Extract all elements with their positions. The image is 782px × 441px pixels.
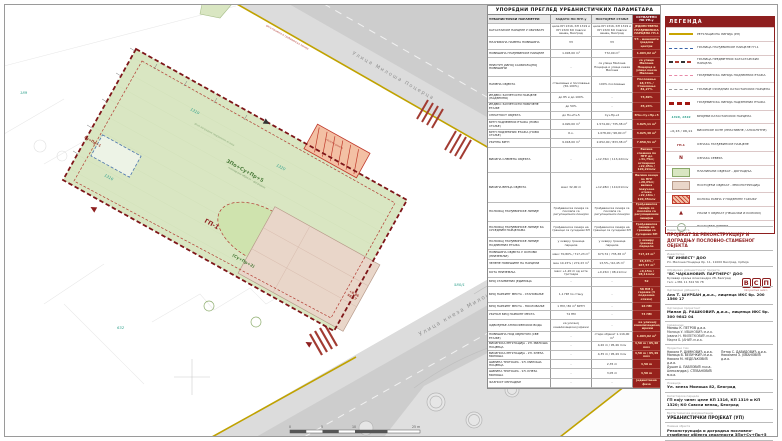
parameter-value: у оквиру граница парцеле <box>592 238 633 251</box>
table-row: ПОВРШИНА ПОД ОБЈЕКТОМ (СВЕ ЕТАЖЕ)-стари … <box>488 332 661 341</box>
parameter-value: 4,20 m / 95,46 mnv <box>592 342 633 351</box>
parameter-value: у оквиру граница парцеле <box>551 238 592 251</box>
legend-item-label: ГРАНИЦА ПРЕДМЕТНИХ КАТАСТАРСКИХ ПАРЦЕЛА <box>697 58 772 65</box>
parameter-value: ЈЕДИНСТВЕНА ГРАЂЕВИНСКА ПАРЦЕЛА ГП-1 <box>633 24 661 37</box>
table-row: ПОВРШИНА ГРАЂЕВИНСКЕ ПАРЦЕЛЕ1.093,00 m²7… <box>488 50 661 59</box>
parameter-name: БРОЈ СТАМБЕНИХ ЈЕДИНИЦА <box>488 278 551 287</box>
legend-item-label: ОЗНАКА ГРАЂЕВИНСКЕ ПАРЦЕЛЕ <box>697 143 749 146</box>
legend-item: ГРАНИЦА ПРЕДМЕТНИХ КАТАСТАРСКИХ ПАРЦЕЛА <box>666 55 774 69</box>
parameter-value: - <box>551 360 592 369</box>
parameter-value: ка уличној канализационој мрежи <box>633 320 663 333</box>
svg-text:580/1: 580/1 <box>454 282 465 287</box>
parameter-value: +12,28m / 110,01mnv <box>592 173 633 202</box>
parameter-value: - <box>592 93 633 102</box>
parameter-name: ПЛАНИРАНА НАМЕНА ПОВРШИНА <box>488 37 551 50</box>
parameter-value: до 50% <box>551 103 592 112</box>
text-teal-icon: 1316, 1319 <box>668 115 694 119</box>
parameter-name: ПОЛОЖАЈ ГРАЂЕВИНСКЕ ЛИНИЈЕ КА СУСЕДНИМ П… <box>488 222 551 238</box>
parameter-value: у оквиру граница парцеле <box>633 238 661 251</box>
parameter-value: до По+П+5 <box>551 112 592 121</box>
section-value: Марта Б. ЈАНИЋ м.и.а. <box>667 339 771 343</box>
line-blackred-icon <box>668 61 694 63</box>
legend-item: ГРАЂЕВИНСКА ЛИНИЈА НАДЗЕМНИХ ЕТАЖА <box>666 96 774 110</box>
parameter-value: 4.825,11 m² <box>633 120 661 129</box>
section-value: ГП коју чине: целе КП 1316, КП 1319 и КП… <box>667 398 771 407</box>
section-value: Милан Д. РАШКОВИЋ д.и.а., лиценца ИКС бр… <box>667 310 771 319</box>
table-row: ШИРИНА ТРОТОАРА - УЛ. КНЕЗА МИЛОША-3,05 … <box>488 369 661 378</box>
legend-item-label: ПЛАНИРАНИ ОБЈЕКАТ - ДОГРАДЊА <box>697 170 752 173</box>
titleblock-section: СараднициМилош К. ПЕТРОВ д.и.а.Милица У.… <box>665 321 773 344</box>
legend-item-label: БРОЈЕВИ КАТАСТАРСКИХ ПАРЦЕЛА <box>697 115 751 118</box>
parcel-trees <box>204 301 261 327</box>
parameter-name: БРГП ПОДЗЕМНИХ ЕТАЖА (НОВО СТАЊЕ) <box>488 130 551 139</box>
legend-item-label: ПОСТОЈЕЋИ ОБЈЕКАТ - РЕКОНСТРУКЦИЈА <box>697 184 760 187</box>
table-row: ПЛАНИРАНА НАМЕНА ПОВРШИНАУЗУЗУЗ - мешови… <box>488 37 661 50</box>
parameter-name: УКУПНА БРГП <box>488 139 551 148</box>
table-row: ПРИСТУП ЈАВНОЈ САОБРАЋАЈНОЈ ПОВРШИНИ-са … <box>488 58 661 77</box>
parameter-value: мин 10-15% / 272,23 m² <box>551 260 592 269</box>
titleblock-section: Одговорни урбанистаАна Т. ШУРБАН д.и.а.,… <box>665 286 773 303</box>
parameters-table-body: КАТАСТАРСКЕ ПАРЦЕЛЕ У ОБУХВАТУцеле КП 13… <box>488 24 661 387</box>
svg-text:5: 5 <box>321 425 323 429</box>
titleblock-section: Врста техничке документацијеУРБАНИСТИЧКИ… <box>665 409 773 422</box>
parameter-value: целе КП 1316, КП 1319 и КП 1320 КО Савск… <box>592 24 633 37</box>
parameter-value: 73,89% <box>633 93 661 102</box>
svg-text:189: 189 <box>20 90 28 95</box>
parameter-name: УКУПАН БРОЈ ПАРКИНГ МЕСТА <box>488 311 551 320</box>
parameter-name: ШИРИНА ТРОТОАРА - УЛ. МИЛОША ПОЦЕРЦА <box>488 360 551 369</box>
parameter-value: 1 ПМ / 80 m² БРГП <box>551 303 592 312</box>
legend-item: 1316, 1319БРОЈЕВИ КАТАСТАРСКИХ ПАРЦЕЛА <box>666 110 774 124</box>
parameter-value: 772,00 m² <box>592 50 633 59</box>
parameter-value: 1.078,00 / 98,00 m² <box>592 130 633 139</box>
parameter-value: јединствена фаза <box>633 379 661 388</box>
swatch-green-icon <box>668 168 694 177</box>
parameter-value: 4,35 m / 95,49 mnv <box>592 351 633 360</box>
line-yellow-icon <box>668 33 694 35</box>
parameter-value: УЗ <box>592 37 633 50</box>
parameter-name: КОТА ПРИЗЕМЉА <box>488 269 551 278</box>
table-row: УКУПАН БРОЈ ПАРКИНГ МЕСТА74 ПМ-74 ПМ <box>488 311 661 320</box>
parameter-value: макс 70,80% / 717,23 m² <box>551 250 592 259</box>
parameter-value: до 85 и до 100% <box>551 93 592 102</box>
parameter-value: - <box>551 369 592 378</box>
parameter-value: Грађевинска линија на граници са суседни… <box>592 222 633 238</box>
table-row: БРГП ПОДЗЕМНИХ ЕТАЖА (НОВО СТАЊЕ)б.о.1.0… <box>488 130 661 139</box>
parameter-value: +0,15m / 98,11mnv <box>592 269 633 278</box>
parameter-value: - <box>551 278 592 287</box>
table-row: БРОЈ СТАМБЕНИХ ЈЕДИНИЦА--52 <box>488 278 661 287</box>
parameter-value: УЗ - мешовити градски центри <box>633 37 661 50</box>
parameter-name: ПРИСТУП ЈАВНОЈ САОБРАЋАЈНОЈ ПОВРШИНИ <box>488 58 551 77</box>
parameter-value: - <box>551 332 592 341</box>
table-row: ИНДЕКС ЗАУЗЕТОСТИ ПАРЦЕЛЕ (НАДЗЕМНО)до 8… <box>488 93 661 102</box>
parameter-value: 1.093,02 m² <box>633 50 661 59</box>
parameter-name: ВИСИНА СЛЕМЕНА ОБЈЕКТА <box>488 148 551 174</box>
parameter-value: 1.093,00 m² <box>551 50 592 59</box>
legend-item-label: КОЛСКА РАМПА У ПОДЗЕМНУ ГАРАЖУ <box>697 198 757 201</box>
titleblock-section: Намена објектаРеконструкција и доградња … <box>665 422 773 439</box>
parameter-name: ШИРИНА ТРОТОАРА - УЛ. КНЕЗА МИЛОША <box>488 369 551 378</box>
parameter-value: 58 ПМ у гаражи (3 подземне етаже) <box>633 287 661 303</box>
parameter-value: 1.574,00 / 735,38 m² <box>592 120 633 129</box>
parameters-table: УПОРЕДНИ ПРЕГЛЕД УРБАНИСТИЧКИХ ПАРАМЕТАР… <box>487 5 662 389</box>
legend-item-label: ОЗНАКА СЕВЕРА <box>697 157 723 160</box>
column-header: ЗАДАТО ПО ПГР-у <box>551 15 592 24</box>
legend-item: NОЗНАКА СЕВЕРА <box>666 151 774 165</box>
table-row: ПОЛОЖАЈ ГРАЂЕВИНСКЕ ЛИНИЈЕ ПОДЗЕМНИХ ЕТА… <box>488 238 661 251</box>
parameter-value: Грађевинска линија се поклапа са регулац… <box>592 203 633 222</box>
right-panel: ЛЕГЕНДА РЕГУЛАЦИОНА ЛИНИЈА (РЛ)ГРАНИЦА Г… <box>660 4 779 437</box>
legend-item-label: ГРАЂЕВИНСКА ЛИНИЈА ПОДЗЕМНИХ ЕТАЖА <box>697 74 766 77</box>
table-row: ВИСИНА СЛЕМЕНА ОБЈЕКТА-+12,76m / 113,22m… <box>488 148 661 174</box>
parameter-value: 16 ПМ <box>633 303 661 312</box>
parameter-value: - <box>551 379 592 388</box>
parameter-value: Грађевинска линија се поклапа са регулац… <box>551 203 592 222</box>
svg-text:10: 10 <box>352 425 356 429</box>
parameter-value: +12,76m / 113,22mnv <box>592 148 633 174</box>
legend-item: РЕГУЛАЦИОНА ЛИНИЈА (РЛ) <box>666 27 774 41</box>
table-row: ФАЗНОСТ ИЗГРАДЊЕ--јединствена фаза <box>488 379 661 388</box>
parameter-value: - <box>592 303 633 312</box>
parameter-value: - <box>551 342 592 351</box>
titleblock-section: Обрађивач урбанистичког пројекта"ВС ЧАЈК… <box>665 266 773 286</box>
titleblock-sections: Назив пројектаПРОЈЕКАТ ЗА РЕКОНСТРУКЦИЈУ… <box>665 226 773 441</box>
table-row: ВИСИНСКА РЕГУЛАЦИЈА - УЛ. КНЕЗА МИЛОША-4… <box>488 351 661 360</box>
table-row: ОДВОЂЕЊЕ АТМОСФЕРСКИХ ВОДАка уличној кан… <box>488 320 661 333</box>
table-row: БРГП НАДЗЕМНИХ ЕТАЖА (НОВО СТАЊЕ)4.920,0… <box>488 120 661 129</box>
parameter-value: - <box>592 311 633 320</box>
drawing-sheet: Улица Милоша Поцерца Улица кнеза Милоша … <box>0 0 782 441</box>
parameter-name: КАТАСТАРСКЕ ПАРЦЕЛЕ У ОБУХВАТУ <box>488 24 551 37</box>
svg-text:25 m: 25 m <box>412 425 420 429</box>
table-row: ВИСИНА ВЕНЦА ОБЈЕКТАмакс 32,00 m+12,28m … <box>488 173 661 202</box>
table-row: СПРАТНОСТ ОБЈЕКТАдо По+П+5Су+Пр+23По+Су+… <box>488 112 661 121</box>
parameter-value: Висина слемена по ПГР до +31,75m; оствар… <box>633 148 661 174</box>
legend-item: ПОСТОЈЕЋИ ОБЈЕКАТ - РЕКОНСТРУКЦИЈА <box>666 178 774 192</box>
column-header: УРБАНИСТИЧКИ ПАРАМЕТРИ <box>488 15 551 24</box>
titleblock-section: Катастарске парцелеГП коју чине: целе КП… <box>665 392 773 409</box>
parameter-value: 100% пословање <box>592 77 633 93</box>
section-value: Реконструкција и доградња пословно-стамб… <box>667 429 771 438</box>
parameter-name: ПОВРШИНА ПОД ОБЈЕКТОМ (СВЕ ЕТАЖЕ) <box>488 332 551 341</box>
team-member: Александра Ј. СТЕВАНОВИЋ м.и.а. <box>667 370 717 378</box>
parameter-value: 3По+Су+Пр+5 <box>633 112 661 121</box>
swatch-hatch-icon <box>668 195 694 204</box>
parameters-table-title: УПОРЕДНИ ПРЕГЛЕД УРБАНИСТИЧКИХ ПАРАМЕТАР… <box>488 6 661 15</box>
table-row: КАТАСТАРСКЕ ПАРЦЕЛЕ У ОБУХВАТУцеле КП 13… <box>488 24 661 37</box>
parameter-name: ВИСИНА ВЕНЦА ОБЈЕКТА <box>488 173 551 202</box>
parameter-value: стари објекат 1.116,00 m² <box>592 332 633 341</box>
legend-item-label: ГРАНИЦА ГРАЂЕВИНСКЕ ПАРЦЕЛЕ ГП-1 <box>697 46 759 49</box>
titleblock-section: Инвеститор"ВГ ИНВЕСТ" ДООУл. Милоша Поце… <box>665 250 773 266</box>
parameters-table-header: УРБАНИСТИЧКИ ПАРАМЕТРИ ЗАДАТО ПО ПГР-у П… <box>488 15 661 24</box>
parameter-value: ка уличној канализационој мрежи <box>551 320 592 333</box>
line-blue-dash-icon <box>668 48 694 49</box>
text-red-icon: ГП-1 <box>668 143 694 147</box>
parameter-name: БРГП НАДЗЕМНИХ ЕТАЖА (НОВО СТАЊЕ) <box>488 120 551 129</box>
section-value: Ана Т. ШУРБАН д.и.а., лиценца ИКС бр. 20… <box>667 293 771 302</box>
parameter-value: - <box>592 278 633 287</box>
svg-text:632: 632 <box>117 325 125 330</box>
section-value: УРБАНИСТИЧКИ ПРОЈЕКАТ (УП) <box>667 415 771 420</box>
parameter-value: 45,24% <box>633 103 661 112</box>
parameter-value: 717,23 m² <box>633 250 661 259</box>
parameter-value: 4.920,00 m² <box>551 120 592 129</box>
legend-title: ЛЕГЕНДА <box>666 17 774 27</box>
triangle-red-icon: ▲ <box>668 210 694 216</box>
table-row: ПОЛОЖАЈ ГРАЂЕВИНСКЕ ЛИНИЈЕГрађевинска ли… <box>488 203 661 222</box>
legend-item-label: УЛАЗИ У ОБЈЕКАТ (ПЕШАЧКИ И КОЛСКИ) <box>697 212 761 215</box>
titleblock-section: Одговорни пројектантМилан Д. РАШКОВИЋ д.… <box>665 304 773 321</box>
parameter-name: ФАЗНОСТ ИЗГРАДЊЕ <box>488 379 551 388</box>
legend-item: КОЛСКА РАМПА У ПОДЗЕМНУ ГАРАЖУ <box>666 192 774 206</box>
parameter-name: СПРАТНОСТ ОБЈЕКТА <box>488 112 551 121</box>
parameter-name: ПОВРШИНА ГРАЂЕВИНСКЕ ПАРЦЕЛЕ <box>488 50 551 59</box>
parameter-value: - <box>551 148 592 174</box>
parameter-value: Висина венца по ПГР +28,65m; висина пову… <box>633 173 661 202</box>
table-row: БРОЈ ПАРКИНГ МЕСТА - ПОСЛОВАЊЕ1 ПМ / 80 … <box>488 303 661 312</box>
swatch-beige-icon <box>668 181 694 190</box>
table-row: ПОЛОЖАЈ ГРАЂЕВИНСКЕ ЛИНИЈЕ КА СУСЕДНИМ П… <box>488 222 661 238</box>
parameter-value: 673,74 / 735,38 m² <box>592 250 633 259</box>
parameter-value: 4,50 m / 95,46 mnv <box>633 342 661 351</box>
table-row: БРОЈ ПАРКИНГ МЕСТА - СТАНОВАЊЕ1,1 ПМ по … <box>488 287 661 303</box>
parameter-value: 1,1 ПМ по стану <box>551 287 592 303</box>
section-label: Назив пројекта <box>667 228 771 232</box>
parameter-value: +0,15m / 98,11mnv <box>633 269 661 278</box>
titleblock-section: Назив пројектаПРОЈЕКАТ ЗА РЕКОНСТРУКЦИЈУ… <box>665 226 773 250</box>
parameter-value: 4,50 m / 95,49 mnv <box>633 351 661 360</box>
legend-item: ГРАНИЦА ГРАЂЕВИНСКЕ ПАРЦЕЛЕ ГП-1 <box>666 41 774 55</box>
parameter-name: БРОЈ ПАРКИНГ МЕСТА - СТАНОВАЊЕ <box>488 287 551 303</box>
parameter-value: 3.025,40 m² <box>633 130 661 139</box>
entrance-arrow-icon <box>304 339 312 347</box>
parameter-value: - <box>592 287 633 303</box>
line-pink-dash-icon <box>668 75 694 76</box>
parameter-name: ИНДЕКС ЗАУЗЕТОСТИ ПОВУЧЕНЕ ЕТАЖЕ <box>488 103 551 112</box>
section-value: Ул. кнеза Милоша 82, Београд <box>667 385 771 390</box>
north-icon: N <box>668 156 694 161</box>
parameter-value: Грађевинска линија на граници са суседни… <box>551 222 592 238</box>
parameter-value: са улице Милоша Поцерца и улице кнеза Ми… <box>633 58 661 77</box>
parameter-value: б.о. <box>551 130 592 139</box>
parameter-name: ИНДЕКС ЗАУЗЕТОСТИ ПАРЦЕЛЕ (НАДЗЕМНО) <box>488 93 551 102</box>
parameter-value: Пословање 18,73% / Становање 81,27% <box>633 77 661 93</box>
table-row: ЗЕЛЕНЕ ПОВРШИНЕ НА ПАРЦЕЛИмин 10-15% / 2… <box>488 260 661 269</box>
parameter-value: 2.652,00 / 833,38 m² <box>592 139 633 148</box>
parameter-value: макс 32,00 m <box>551 173 592 202</box>
legend-item: ПЛАНИРАНИ ОБЈЕКАТ - ДОГРАДЊА <box>666 165 774 179</box>
title-block: Назив пројектаПРОЈЕКАТ ЗА РЕКОНСТРУКЦИЈУ… <box>665 226 773 441</box>
parameter-value: целе КП 1316, КП 1319 и КП 1320 КО Савск… <box>551 24 592 37</box>
table-row: ПОВРШИНА ОБЈЕКТА У ОСНОВИ (ПРИЗЕМЉЕ)макс… <box>488 250 661 259</box>
column-header: ОСТВАРЕНО ПО УП-у <box>633 15 661 24</box>
parameter-name: ПОВРШИНА ОБЈЕКТА У ОСНОВИ (ПРИЗЕМЉЕ) <box>488 250 551 259</box>
legend-item: ГРАНИЦЕ СУСЕДНИХ КАТАСТАРСКИХ ПАРЦЕЛА <box>666 82 774 96</box>
parameter-value: 74 ПМ <box>633 311 661 320</box>
titleblock-section: Пројектни тимНикола Р. ДИМКОВИЋ д.и.а.Ми… <box>665 344 773 379</box>
parameter-value: макс +1,20 m од коте тротоара <box>551 269 592 278</box>
parameter-name: НАМЕНА ОБЈЕКТА <box>488 77 551 93</box>
entrance-arrow-icon <box>89 204 97 212</box>
crosshair-marker <box>174 359 210 395</box>
legend-item: ГРАЂЕВИНСКА ЛИНИЈА ПОДЗЕМНИХ ЕТАЖА <box>666 68 774 82</box>
table-row: УКУПНА БРГП9.018,00 m²2.652,00 / 833,38 … <box>488 139 661 148</box>
table-row: ИНДЕКС ЗАУЗЕТОСТИ ПОВУЧЕНЕ ЕТАЖЕдо 50%-4… <box>488 103 661 112</box>
parameter-name: БРОЈ ПАРКИНГ МЕСТА - ПОСЛОВАЊЕ <box>488 303 551 312</box>
section-value: Ул. Милоша Поцерца бр. 11, 11000 Београд… <box>667 261 771 265</box>
parameter-value: 4,50 m <box>633 369 661 378</box>
parameter-value: - <box>592 320 633 333</box>
legend-panel: ЛЕГЕНДА РЕГУЛАЦИОНА ЛИНИЈА (РЛ)ГРАНИЦА Г… <box>665 16 775 234</box>
parameter-name: ПОЛОЖАЈ ГРАЂЕВИНСКЕ ЛИНИЈЕ ПОДЗЕМНИХ ЕТА… <box>488 238 551 251</box>
parameter-value: 4,50 m <box>633 360 661 369</box>
legend-item: ▲УЛАЗИ У ОБЈЕКАТ (ПЕШАЧКИ И КОЛСКИ) <box>666 206 774 220</box>
parameter-value: Грађевинска линија се поклапа са регулац… <box>633 203 661 222</box>
parameter-value: Су+Пр+2 <box>592 112 633 121</box>
legend-item-label: ГРАЂЕВИНСКА ЛИНИЈА НАДЗЕМНИХ ЕТАЖА <box>697 101 765 104</box>
table-row: НАМЕНА ОБЈЕКТАстановање и пословање (50-… <box>488 77 661 93</box>
section-value: ПРОЈЕКАТ ЗА РЕКОНСТРУКЦИЈУ И ДОГРАДЊУ ПО… <box>667 232 771 248</box>
parameter-value: - <box>592 379 633 388</box>
text-gray-icon: +0,15 / 98,11 <box>668 129 694 133</box>
parameter-value: 74 ПМ <box>551 311 592 320</box>
legend-item: +0,15 / 98,11ВИСИНСКЕ КОТЕ (РЕЛАТИВНЕ / … <box>666 123 774 137</box>
titleblock-section: ЛокацијаУл. кнеза Милоша 82, Београд <box>665 379 773 392</box>
legend-item-label: РЕГУЛАЦИОНА ЛИНИЈА (РЛ) <box>697 33 740 36</box>
parameter-value: - <box>551 351 592 360</box>
parameter-value: 1.093,02 m² <box>633 332 661 341</box>
parameter-name: ПОЛОЖАЈ ГРАЂЕВИНСКЕ ЛИНИЈЕ <box>488 203 551 222</box>
parameter-value: становање и пословање (50-100%) <box>551 77 592 93</box>
parameter-value: - <box>592 103 633 112</box>
parameter-name: ОДВОЂЕЊЕ АТМОСФЕРСКИХ ВОДА <box>488 320 551 333</box>
column-header: ПОСТОЈЕЋЕ СТАЊЕ <box>592 15 633 24</box>
table-row: ШИРИНА ТРОТОАРА - УЛ. МИЛОША ПОЦЕРЦА-2,3… <box>488 360 661 369</box>
parameter-name: ВИСИНСКА РЕГУЛАЦИЈА - УЛ. КНЕЗА МИЛОША <box>488 351 551 360</box>
parameter-name: ЗЕЛЕНЕ ПОВРШИНЕ НА ПАРЦЕЛИ <box>488 260 551 269</box>
green-patch <box>200 4 232 18</box>
parameter-value: 15,33% / 167,57 m² <box>633 260 661 269</box>
legend-item-label: ВИСИНСКЕ КОТЕ (РЕЛАТИВНЕ / АПСОЛУТНЕ) <box>697 129 767 132</box>
line-gray-dash-icon <box>668 89 694 90</box>
parameter-value: УЗ <box>551 37 592 50</box>
parameter-value: Грађевинска линија на граници са суседни… <box>633 222 661 238</box>
parameter-name: ВИСИНСКА РЕГУЛАЦИЈА - УЛ. МИЛОША ПОЦЕРЦА <box>488 342 551 351</box>
table-row: ВИСИНСКА РЕГУЛАЦИЈА - УЛ. МИЛОША ПОЦЕРЦА… <box>488 342 661 351</box>
parameter-value: 52 <box>633 278 661 287</box>
line-red-dash-icon <box>668 102 694 105</box>
team-member: Николина З. ЈОВАНОВИЋ д.и.а. <box>721 354 771 362</box>
svg-text:0: 0 <box>289 425 291 429</box>
parameter-value: 2,35 m <box>592 360 633 369</box>
section-label: Врста техничке документације <box>667 411 771 415</box>
parameter-value: 7.850,51 m² <box>633 139 661 148</box>
parameter-value: са улице Милоша Поцерца и улице кнеза Ми… <box>592 58 633 77</box>
parameter-value: - <box>551 58 592 77</box>
parameter-value: 13,5% / 62,45 m² <box>592 260 633 269</box>
parameter-value: 3,05 m <box>592 369 633 378</box>
parameter-value: 9.018,00 m² <box>551 139 592 148</box>
legend-item-label: ГРАНИЦЕ СУСЕДНИХ КАТАСТАРСКИХ ПАРЦЕЛА <box>697 88 770 91</box>
legend-items: РЕГУЛАЦИОНА ЛИНИЈА (РЛ)ГРАНИЦА ГРАЂЕВИНС… <box>666 27 774 233</box>
table-row: КОТА ПРИЗЕМЉАмакс +1,20 m од коте тротоа… <box>488 269 661 278</box>
legend-item: ГП-1ОЗНАКА ГРАЂЕВИНСКЕ ПАРЦЕЛЕ <box>666 137 774 151</box>
